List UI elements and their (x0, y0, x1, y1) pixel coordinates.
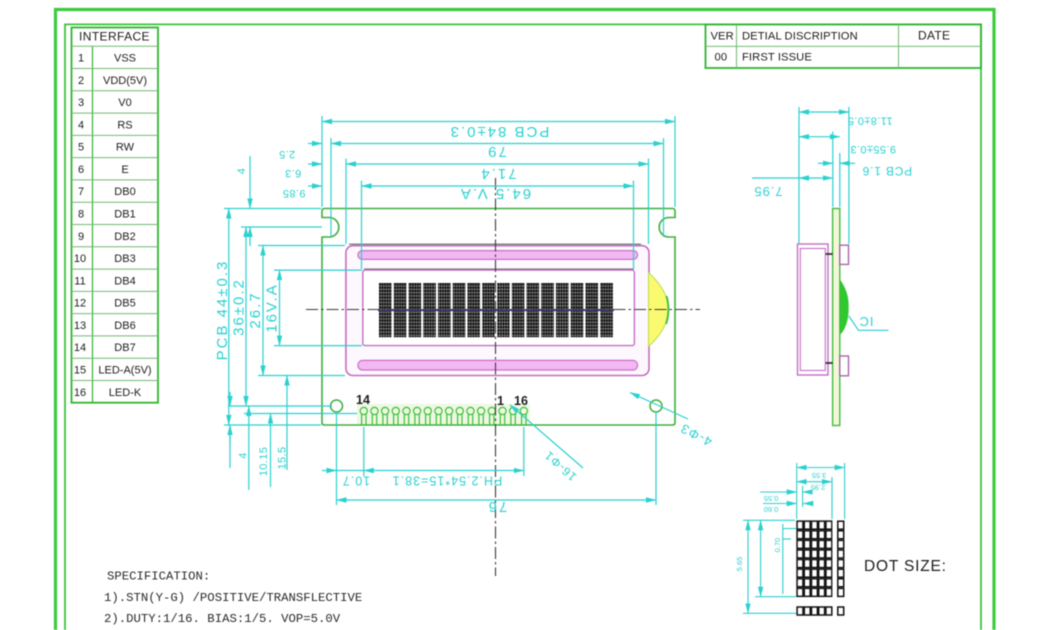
svg-text:16V.A: 16V.A (264, 283, 281, 333)
svg-text:VDD(5V): VDD(5V) (103, 75, 147, 87)
svg-text:9.55±0.3: 9.55±0.3 (850, 143, 896, 155)
svg-text:4: 4 (236, 168, 248, 175)
svg-text:INTERFACE: INTERFACE (79, 30, 150, 44)
svg-text:IC: IC (859, 314, 874, 329)
svg-text:PCB 84±0.3: PCB 84±0.3 (449, 123, 550, 140)
svg-text:4: 4 (78, 119, 84, 131)
svg-text:76: 76 (487, 498, 508, 515)
svg-text:15.5: 15.5 (277, 446, 289, 469)
svg-text:5.65: 5.65 (735, 557, 744, 572)
svg-text:7: 7 (78, 186, 84, 198)
svg-text:6.3: 6.3 (285, 167, 302, 179)
svg-text:DOT SIZE:: DOT SIZE: (864, 558, 947, 575)
svg-text:7.95: 7.95 (753, 184, 782, 199)
svg-text:9: 9 (78, 231, 84, 243)
svg-text:10.7: 10.7 (342, 474, 370, 488)
svg-text:DB0: DB0 (114, 186, 135, 198)
svg-text:16: 16 (74, 387, 86, 399)
svg-text:VER: VER (711, 31, 734, 43)
svg-text:4: 4 (238, 452, 250, 459)
svg-text:9.85: 9.85 (282, 187, 305, 199)
svg-text:14: 14 (74, 342, 86, 354)
svg-text:RW: RW (116, 142, 135, 154)
svg-text:64.5 V.A: 64.5 V.A (459, 185, 531, 202)
svg-text:DB2: DB2 (114, 231, 135, 243)
svg-text:13: 13 (74, 320, 86, 332)
svg-text:12: 12 (74, 298, 86, 310)
svg-text:2.95: 2.95 (811, 483, 826, 492)
svg-text:26.7: 26.7 (247, 291, 264, 328)
svg-text:8: 8 (78, 209, 84, 221)
svg-text:DETIAL DISCRIPTION: DETIAL DISCRIPTION (742, 31, 858, 43)
svg-text:1: 1 (78, 53, 84, 65)
svg-text:DATE: DATE (918, 29, 950, 43)
svg-text:0.60: 0.60 (764, 505, 779, 514)
svg-text:DB7: DB7 (114, 342, 135, 354)
svg-text:E: E (121, 164, 128, 176)
svg-text:1: 1 (497, 394, 504, 408)
svg-text:36±0.2: 36±0.2 (231, 278, 248, 336)
svg-text:0.55: 0.55 (764, 494, 779, 503)
svg-text:0.70: 0.70 (773, 538, 782, 553)
svg-text:SPECIFICATION:: SPECIFICATION: (107, 570, 210, 584)
svg-text:16: 16 (514, 394, 528, 408)
svg-text:3.55: 3.55 (812, 471, 827, 480)
svg-text:LED-A(5V): LED-A(5V) (98, 365, 151, 377)
svg-text:3: 3 (78, 97, 84, 109)
svg-text:14: 14 (356, 393, 370, 407)
svg-text:DB1: DB1 (114, 209, 135, 221)
svg-text:RS: RS (117, 119, 132, 131)
svg-text:DB4: DB4 (114, 275, 135, 287)
svg-text:15: 15 (74, 365, 86, 377)
svg-text:10.15: 10.15 (258, 447, 270, 477)
svg-text:LED-K: LED-K (109, 387, 142, 399)
svg-text:1).STN(Y-G) /POSITIVE/TRANSFLE: 1).STN(Y-G) /POSITIVE/TRANSFLECTIVE (104, 591, 362, 605)
svg-text:11.8±0.5: 11.8±0.5 (847, 114, 892, 126)
svg-text:10: 10 (74, 253, 86, 265)
svg-text:DB3: DB3 (114, 253, 135, 265)
svg-text:5: 5 (78, 142, 84, 154)
svg-text:DB6: DB6 (114, 320, 135, 332)
svg-text:DB5: DB5 (114, 298, 135, 310)
svg-text:V0: V0 (118, 97, 131, 109)
svg-text:2).DUTY:1/16. BIAS:1/5. VOP=5.: 2).DUTY:1/16. BIAS:1/5. VOP=5.0V (104, 612, 341, 626)
svg-text:6: 6 (78, 164, 84, 176)
svg-text:VSS: VSS (114, 53, 136, 65)
svg-text:79: 79 (486, 143, 507, 160)
svg-text:PCB 44±0.3: PCB 44±0.3 (214, 260, 231, 361)
svg-text:71.4: 71.4 (479, 165, 516, 182)
svg-text:2: 2 (78, 75, 84, 87)
svg-text:PH.2.54*15=38.1: PH.2.54*15=38.1 (392, 474, 503, 488)
svg-text:00: 00 (715, 52, 728, 64)
svg-text:11: 11 (74, 275, 85, 287)
svg-text:PCB 1.6: PCB 1.6 (862, 164, 912, 178)
svg-text:2.5: 2.5 (279, 148, 296, 160)
svg-text:FIRST ISSUE: FIRST ISSUE (742, 52, 812, 64)
